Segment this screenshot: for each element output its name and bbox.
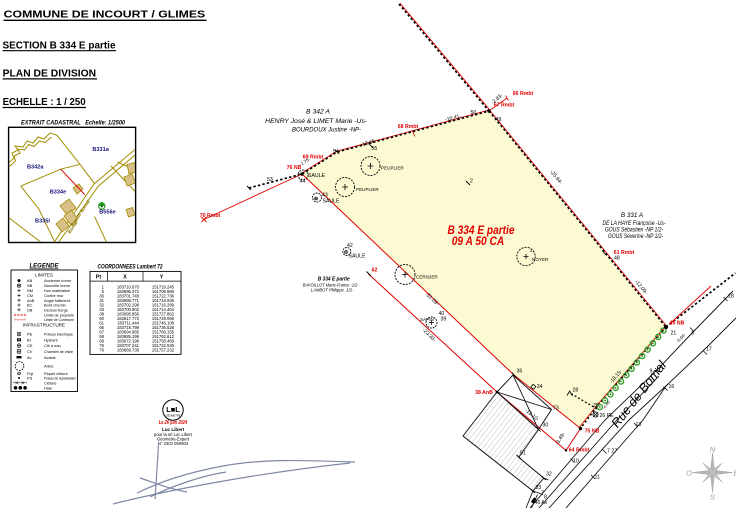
svg-text:BAVOILLOT Marie-France -1/2-: BAVOILLOT Marie-France -1/2-	[303, 282, 359, 288]
svg-text:LIMITES: LIMITES	[35, 273, 53, 278]
svg-text:B342a: B342a	[27, 165, 44, 171]
svg-text:B556e: B556e	[99, 210, 115, 216]
svg-text:SAULE: SAULE	[349, 254, 367, 260]
svg-text:39: 39	[441, 317, 447, 323]
svg-text:Chambre de visite: Chambre de visite	[44, 349, 73, 354]
svg-text:Clé à eau: Clé à eau	[44, 343, 61, 348]
svg-text:76 NB: 76 NB	[287, 165, 302, 171]
svg-text:COORDONNEES Lambert 72: COORDONNEES Lambert 72	[98, 264, 164, 270]
svg-text:48: 48	[614, 256, 620, 262]
svg-text:Haie: Haie	[44, 385, 52, 390]
svg-text:Poteau électrique: Poteau électrique	[44, 332, 73, 337]
svg-text:B335l: B335l	[35, 218, 50, 224]
svg-text:36: 36	[517, 369, 523, 375]
svg-text:Av: Av	[27, 355, 32, 360]
svg-text:B334e: B334e	[50, 189, 66, 195]
svg-text:45 NB: 45 NB	[670, 321, 685, 327]
svg-text:68 Rmbt: 68 Rmbt	[398, 124, 419, 130]
svg-text:Y: Y	[160, 275, 164, 281]
svg-text:66 Rmbt: 66 Rmbt	[513, 91, 534, 97]
svg-text:55: 55	[372, 146, 378, 152]
svg-text:INFRASTRUCTURE: INFRASTRUCTURE	[23, 322, 65, 327]
svg-text:LAMBOT Philippe -1/2-: LAMBOT Philippe -1/2-	[311, 288, 354, 294]
svg-text:7 27: 7 27	[607, 449, 617, 455]
svg-text:Arbre: Arbre	[44, 364, 54, 369]
svg-text:PS: PS	[27, 376, 33, 381]
svg-text:BI: BI	[27, 337, 31, 342]
svg-text:18: 18	[728, 294, 734, 300]
svg-text:Le 26 juin 2024: Le 26 juin 2024	[159, 420, 188, 426]
svg-text:NOYER: NOYER	[532, 257, 549, 262]
svg-text:42: 42	[347, 243, 353, 249]
svg-text:HENRY José & LIMET Marie -Us-: HENRY José & LIMET Marie -Us-	[265, 118, 368, 125]
svg-text:SAULE: SAULE	[323, 199, 341, 205]
svg-text:50: 50	[471, 110, 477, 116]
svg-text:46 Av: 46 Av	[535, 500, 548, 506]
svg-text:L■L: L■L	[166, 405, 180, 414]
svg-text:76: 76	[99, 348, 104, 353]
svg-text:Hydrant: Hydrant	[44, 337, 59, 342]
svg-text:SAPIN: SAPIN	[420, 317, 434, 322]
svg-text:PE: PE	[27, 332, 33, 337]
svg-text:44: 44	[300, 179, 306, 185]
svg-text:32: 32	[546, 472, 552, 478]
svg-text:S: S	[710, 493, 715, 502]
svg-text:CE: CE	[27, 343, 33, 348]
svg-text:BOURDOUX Justine -NP-: BOURDOUX Justine -NP-	[292, 127, 362, 134]
svg-text:53: 53	[267, 177, 273, 183]
svg-text:38 AnB: 38 AnB	[475, 390, 493, 396]
svg-text:2: 2	[470, 179, 473, 185]
svg-text:10: 10	[573, 459, 579, 465]
svg-text:X: X	[123, 275, 127, 281]
svg-text:SAULE: SAULE	[308, 173, 326, 179]
svg-text:51: 51	[520, 451, 526, 457]
svg-text:GEOMETRE: GEOMETRE	[166, 414, 181, 418]
svg-text:16: 16	[669, 384, 675, 390]
svg-text:73: 73	[553, 406, 559, 412]
svg-text:O: O	[686, 468, 692, 477]
svg-text:COMMUNE DE INCOURT / GLIME: COMMUNE DE INCOURT / GLIMES	[4, 9, 206, 21]
svg-text:B 342 A: B 342 A	[306, 109, 330, 116]
svg-text:183669.739: 183669.739	[117, 348, 140, 353]
svg-text:PLAN DE DIVISION: PLAN DE DIVISION	[3, 67, 97, 79]
svg-text:CV: CV	[27, 349, 33, 354]
svg-text:21: 21	[671, 331, 677, 337]
svg-text:DB: DB	[27, 307, 33, 312]
svg-text:Pt: Pt	[96, 275, 102, 281]
svg-text:B331a: B331a	[92, 147, 109, 153]
svg-text:28: 28	[573, 388, 579, 394]
svg-text:B 334 E partie: B 334 E partie	[318, 276, 351, 282]
svg-text:GOUS Séverine -NP 1/2-: GOUS Séverine -NP 1/2-	[608, 233, 663, 240]
svg-text:B 331 A: B 331 A	[621, 212, 643, 219]
svg-text:Avaloir: Avaloir	[44, 355, 57, 360]
svg-text:151757.232: 151757.232	[152, 348, 175, 353]
svg-text:09 A 50 CA: 09 A 50 CA	[452, 234, 505, 248]
svg-text:SECTION B 334 E partie: SECTION B 334 E partie	[3, 39, 116, 51]
svg-text:CERISIER: CERISIER	[416, 275, 438, 280]
svg-text:PEUPLIER: PEUPLIER	[356, 187, 379, 192]
svg-text:13: 13	[636, 422, 642, 428]
svg-text:70 Rmbt: 70 Rmbt	[200, 213, 221, 219]
svg-text:34: 34	[537, 384, 543, 390]
svg-text:64 Rmbt: 64 Rmbt	[569, 448, 590, 454]
svg-text:11: 11	[595, 475, 600, 481]
svg-text:PEUPLIER: PEUPLIER	[381, 166, 404, 171]
svg-text:6: 6	[692, 331, 695, 337]
svg-text:30: 30	[543, 423, 549, 429]
svg-text:N: N	[710, 445, 716, 454]
svg-text:62: 62	[372, 268, 378, 274]
svg-text:25: 25	[593, 403, 599, 409]
svg-text:49: 49	[496, 117, 502, 123]
svg-text:ECHELLE : 1 / 250: ECHELLE : 1 / 250	[3, 96, 86, 108]
svg-text:EXTRAIT CADASTRAL Echelle:: EXTRAIT CADASTRAL Echelle: 1/2500	[21, 119, 125, 126]
svg-text:N° GEO 050904: N° GEO 050904	[158, 441, 189, 446]
svg-text:17: 17	[706, 347, 712, 353]
svg-text:75 NB: 75 NB	[585, 429, 600, 435]
svg-text:54: 54	[333, 149, 339, 155]
svg-text:LEGENDE: LEGENDE	[29, 264, 59, 270]
